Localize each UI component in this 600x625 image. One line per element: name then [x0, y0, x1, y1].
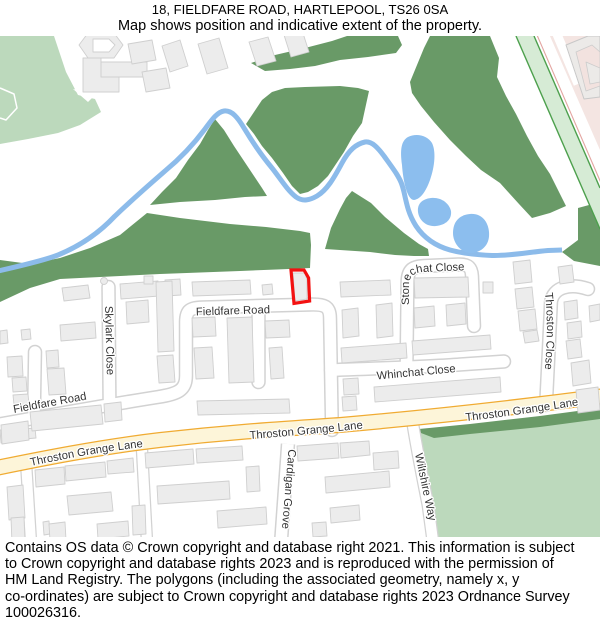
- svg-text:Fieldfare Road: Fieldfare Road: [196, 304, 271, 318]
- svg-text:Skylark Close: Skylark Close: [102, 306, 116, 375]
- svg-text:Throston Close: Throston Close: [542, 292, 556, 370]
